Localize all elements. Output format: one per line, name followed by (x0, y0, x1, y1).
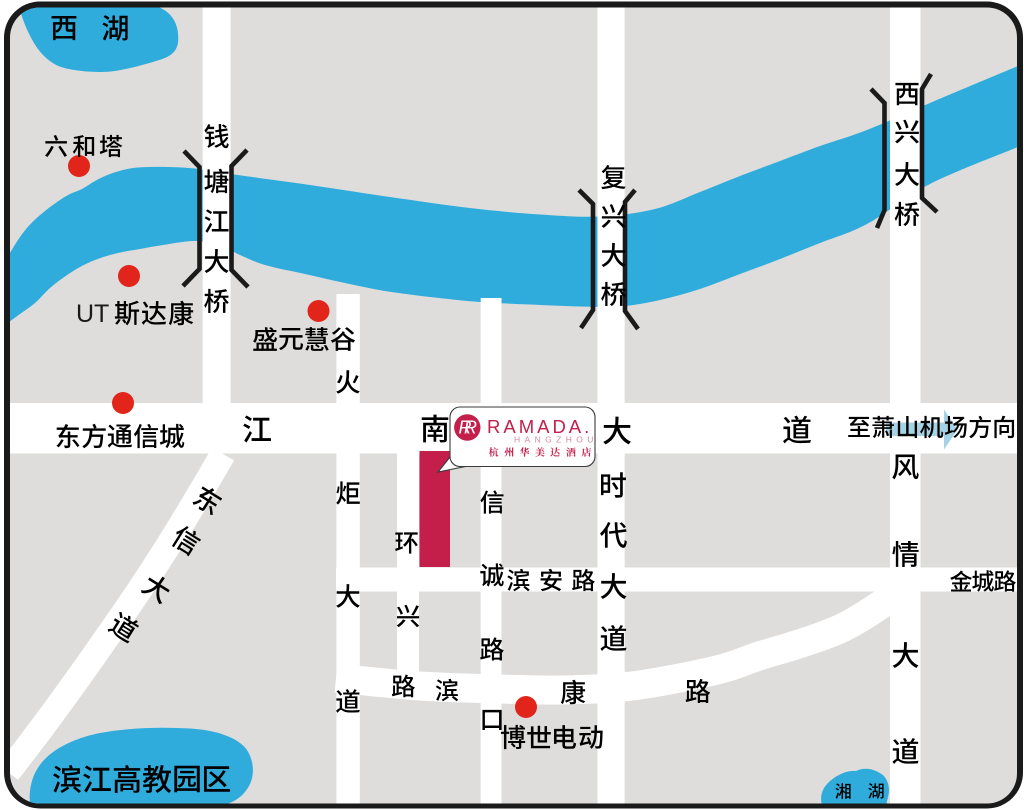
svg-text:HANGZHOU: HANGZHOU (514, 435, 598, 445)
svg-text:R: R (464, 418, 477, 438)
svg-text:UT: UT (76, 300, 109, 328)
